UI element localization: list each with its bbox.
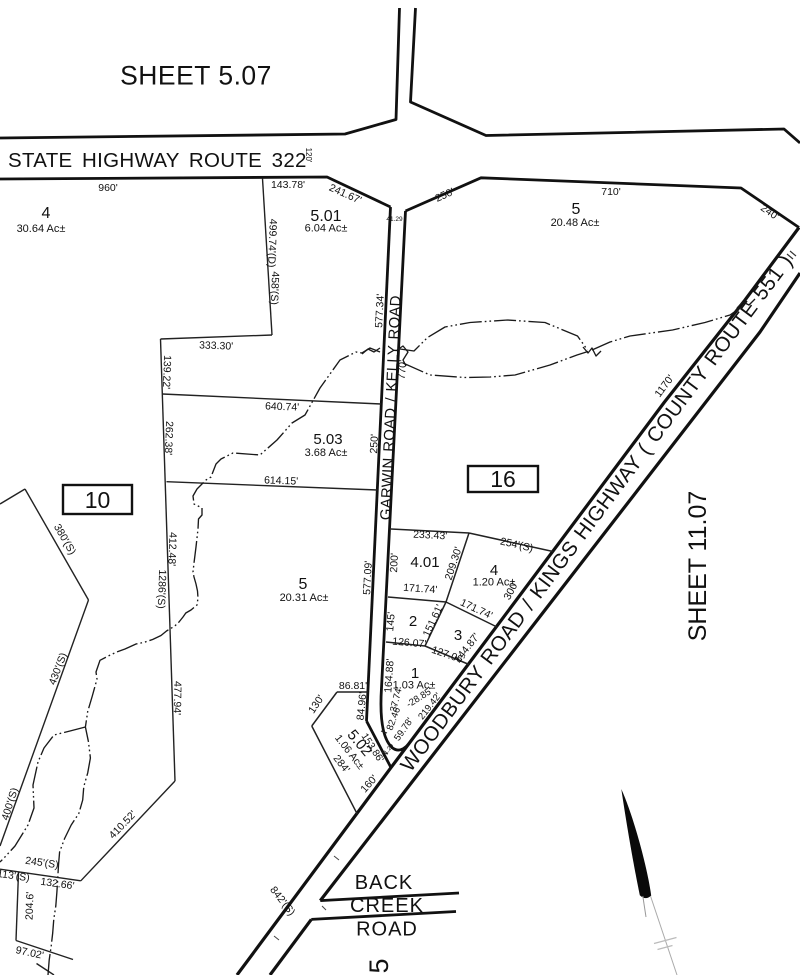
svg-text:6.04 Ac±: 6.04 Ac± bbox=[305, 223, 348, 235]
svg-text:710': 710' bbox=[601, 186, 621, 198]
svg-text:262.38': 262.38' bbox=[162, 421, 175, 456]
svg-text:200': 200' bbox=[388, 553, 401, 573]
svg-text:3.68 Ac±: 3.68 Ac± bbox=[305, 447, 348, 459]
svg-text:ROAD: ROAD bbox=[356, 919, 418, 941]
svg-text:BACK: BACK bbox=[355, 872, 413, 894]
svg-text:4.01: 4.01 bbox=[410, 554, 439, 571]
svg-text:10: 10 bbox=[85, 487, 111, 513]
svg-text:412.48': 412.48' bbox=[165, 532, 178, 567]
svg-text:3: 3 bbox=[454, 627, 462, 644]
svg-text:20.48 Ac±: 20.48 Ac± bbox=[551, 217, 600, 229]
svg-text:5: 5 bbox=[364, 958, 394, 973]
svg-text:86.81': 86.81' bbox=[339, 680, 367, 692]
svg-text:477.94': 477.94' bbox=[171, 681, 184, 715]
svg-text:139.22': 139.22' bbox=[160, 355, 173, 390]
svg-text:145': 145' bbox=[384, 611, 398, 632]
svg-text:233.43': 233.43' bbox=[413, 529, 448, 543]
svg-text:499.74'(D): 499.74'(D) bbox=[265, 219, 279, 268]
svg-text:577.09': 577.09' bbox=[361, 560, 375, 595]
svg-text:770': 770' bbox=[396, 359, 410, 380]
svg-text:20.31 Ac±: 20.31 Ac± bbox=[280, 592, 329, 604]
svg-text:SHEET 5.07: SHEET 5.07 bbox=[120, 61, 272, 91]
svg-text:SHEET 11.07: SHEET 11.07 bbox=[684, 491, 712, 642]
svg-text:16: 16 bbox=[490, 466, 516, 492]
svg-text:5: 5 bbox=[572, 201, 581, 218]
svg-text:1286'(S): 1286'(S) bbox=[155, 569, 168, 609]
svg-text:CREEK: CREEK bbox=[350, 895, 424, 917]
svg-text:STATE HIGHWAY ROUTE 322: STATE HIGHWAY ROUTE 322 bbox=[8, 149, 307, 172]
svg-text:143.78': 143.78' bbox=[271, 179, 305, 191]
svg-text:171.74': 171.74' bbox=[403, 582, 438, 596]
svg-text:204.6': 204.6' bbox=[24, 892, 37, 921]
svg-text:5: 5 bbox=[299, 576, 308, 593]
svg-text:640.74': 640.74' bbox=[265, 400, 300, 413]
svg-text:577.34': 577.34' bbox=[373, 293, 387, 328]
svg-text:960': 960' bbox=[98, 182, 118, 194]
svg-text:2: 2 bbox=[409, 613, 417, 630]
svg-text:30.64 Ac±: 30.64 Ac± bbox=[17, 223, 66, 235]
svg-text:41.29: 41.29 bbox=[386, 216, 403, 223]
svg-text:333.30': 333.30' bbox=[199, 339, 234, 352]
svg-text:120': 120' bbox=[304, 148, 313, 163]
svg-text:614.15': 614.15' bbox=[264, 474, 299, 487]
svg-text:250': 250' bbox=[368, 434, 381, 454]
svg-text:458'(S): 458'(S) bbox=[268, 271, 281, 305]
svg-text:5.03: 5.03 bbox=[313, 431, 342, 448]
svg-text:4: 4 bbox=[42, 205, 51, 222]
